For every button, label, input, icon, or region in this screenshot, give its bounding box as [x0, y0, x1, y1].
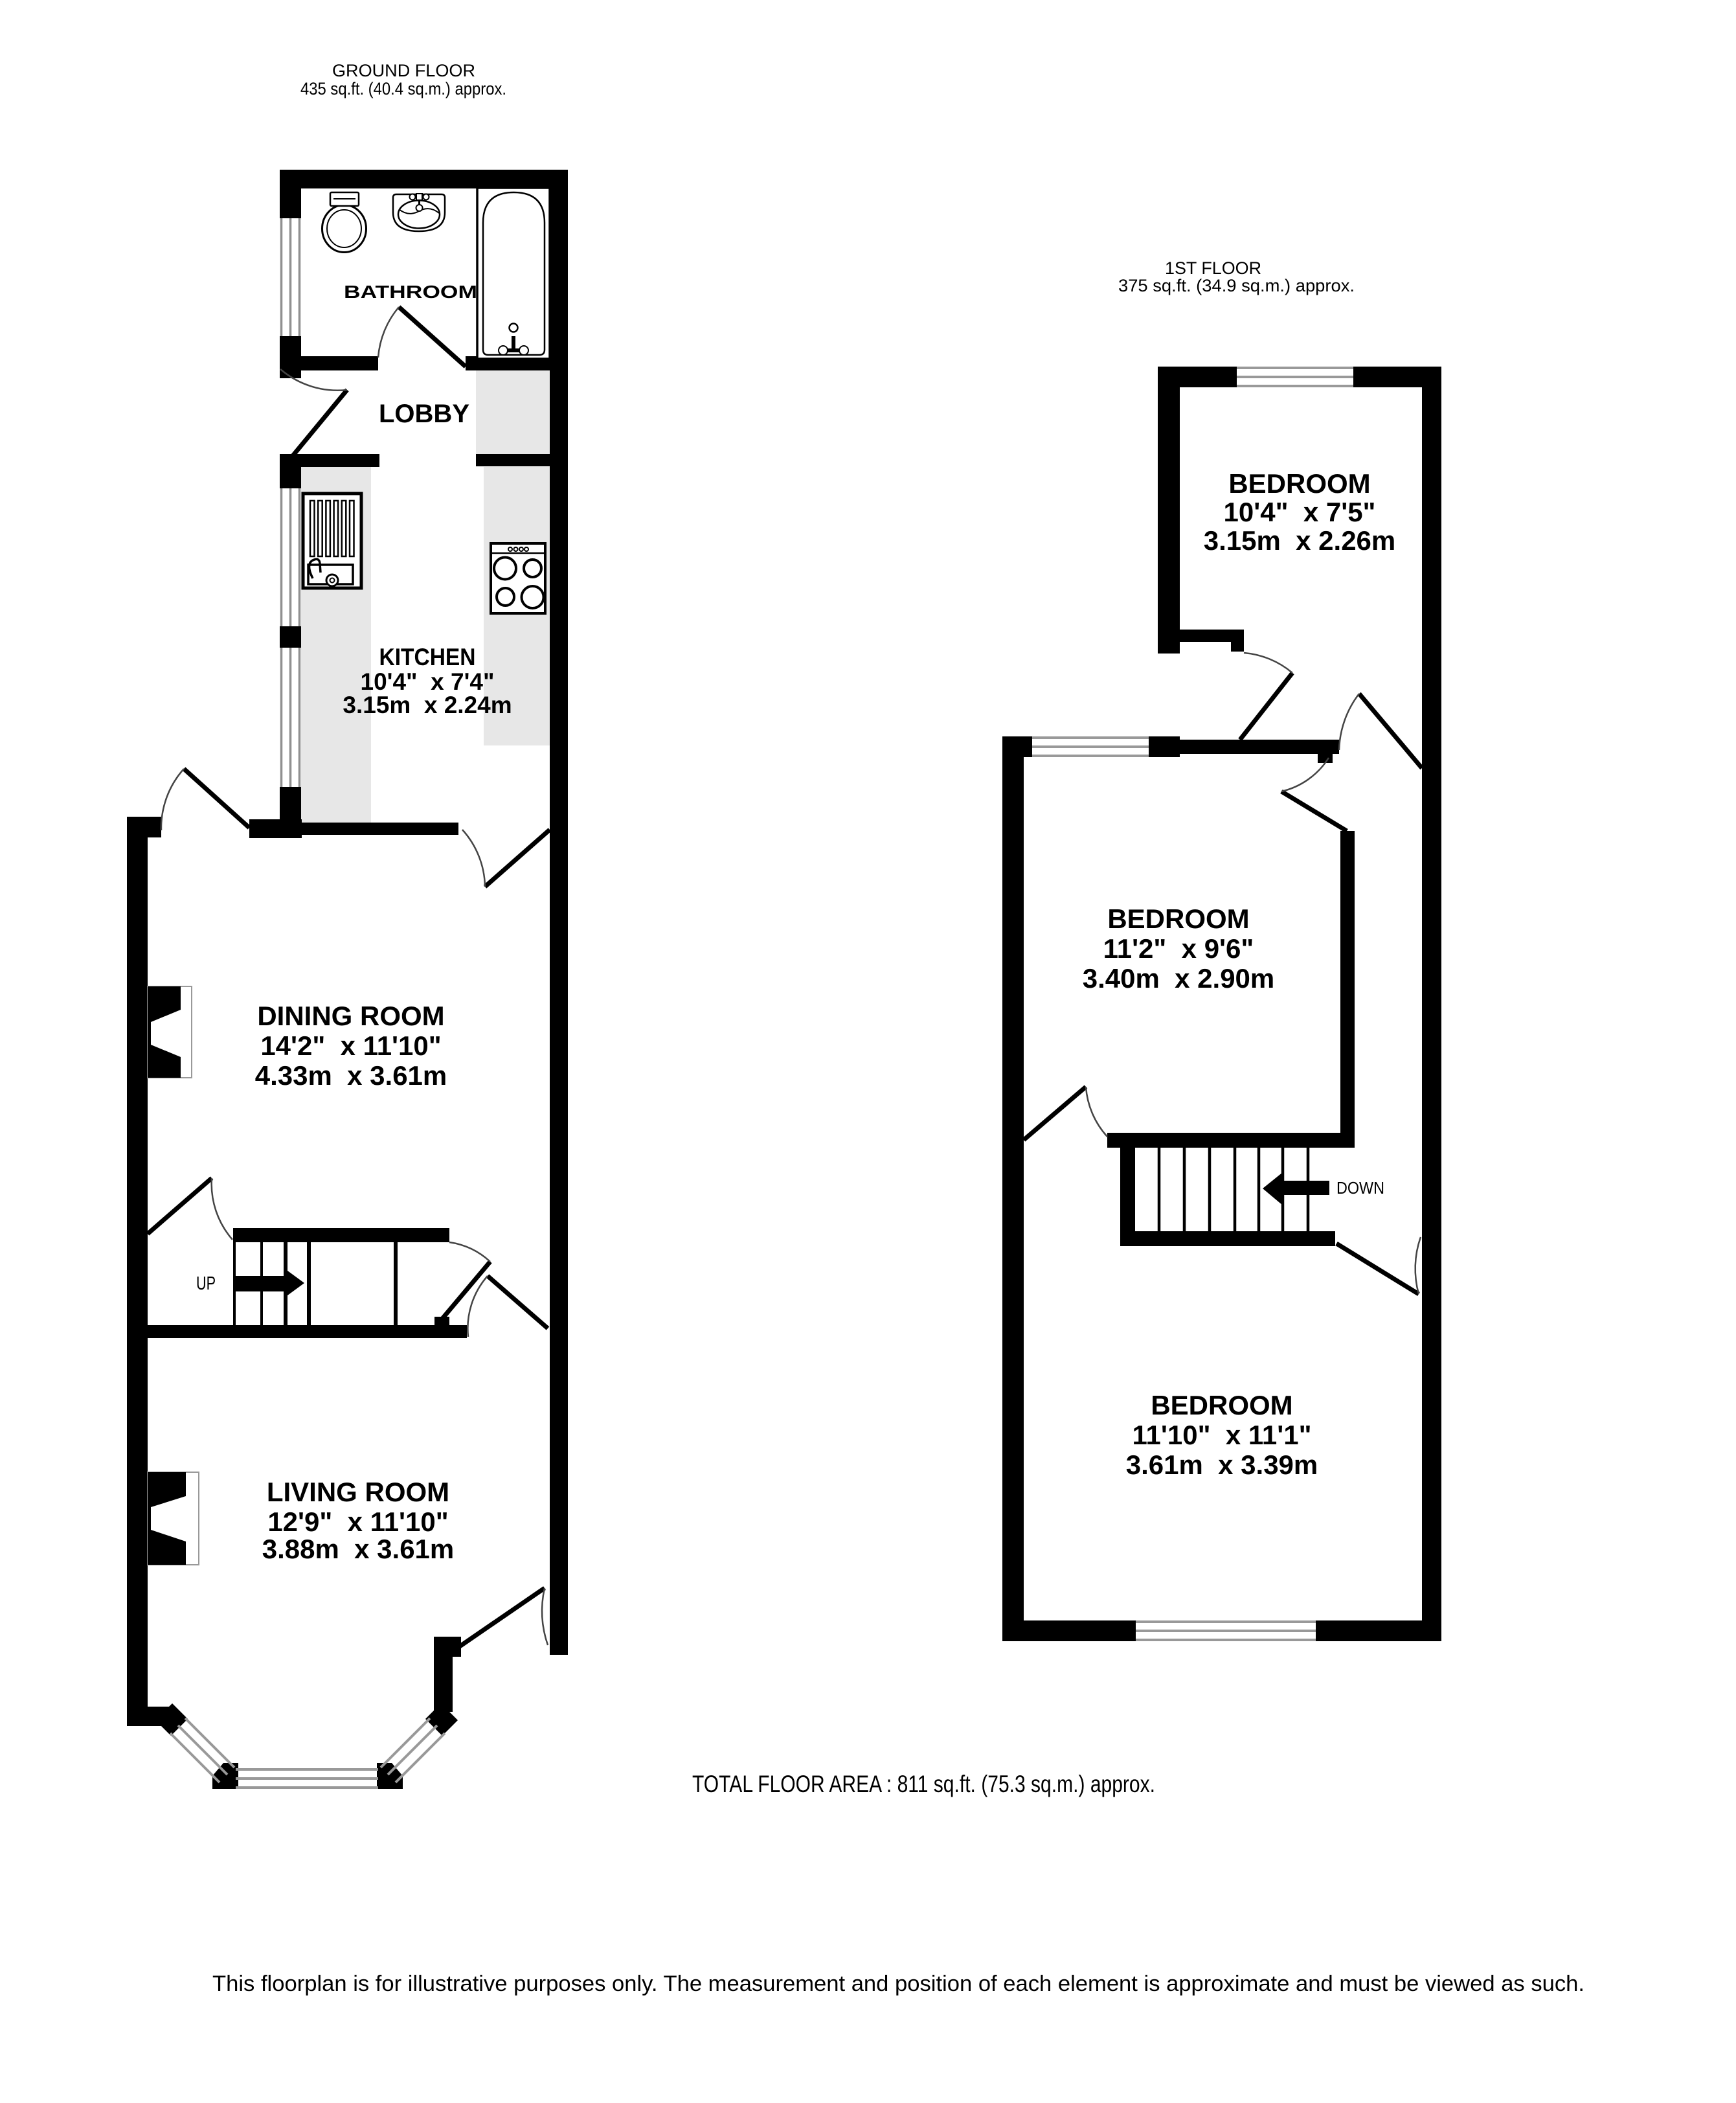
svg-text:LOBBY: LOBBY — [379, 400, 469, 428]
svg-text:12'9" x 11'10": 12'9" x 11'10" — [267, 1506, 448, 1537]
svg-text:TOTAL FLOOR AREA : 811 sq.ft.: TOTAL FLOOR AREA : 811 sq.ft. (75.3 sq.m… — [692, 1771, 1155, 1797]
svg-text:3.15m x 2.24m: 3.15m x 2.24m — [343, 692, 512, 718]
svg-text:3.15m x 2.26m: 3.15m x 2.26m — [1204, 525, 1396, 556]
svg-text:3.61m x 3.39m: 3.61m x 3.39m — [1126, 1449, 1318, 1480]
svg-text:11'2" x 9'6": 11'2" x 9'6" — [1103, 933, 1254, 964]
svg-text:KITCHEN: KITCHEN — [379, 644, 476, 670]
svg-text:1ST FLOOR: 1ST FLOOR — [1165, 258, 1261, 278]
svg-text:375 sq.ft. (34.9 sq.m.) approx: 375 sq.ft. (34.9 sq.m.) approx. — [1118, 276, 1355, 295]
svg-text:10'4" x 7'5": 10'4" x 7'5" — [1224, 497, 1376, 527]
svg-text:DOWN: DOWN — [1336, 1178, 1384, 1198]
svg-text:UP: UP — [196, 1273, 216, 1294]
svg-text:10'4" x 7'4": 10'4" x 7'4" — [361, 668, 495, 695]
svg-text:DINING ROOM: DINING ROOM — [257, 1001, 444, 1031]
svg-text:BEDROOM: BEDROOM — [1228, 468, 1370, 499]
svg-text:3.88m x 3.61m: 3.88m x 3.61m — [262, 1534, 455, 1564]
svg-text:LIVING ROOM: LIVING ROOM — [267, 1477, 449, 1507]
svg-text:This floorplan is for illustra: This floorplan is for illustrative purpo… — [212, 1972, 1584, 1996]
svg-text:4.33m x 3.61m: 4.33m x 3.61m — [255, 1060, 447, 1091]
svg-text:11'10" x 11'1": 11'10" x 11'1" — [1132, 1420, 1311, 1450]
svg-text:435 sq.ft. (40.4 sq.m.) approx: 435 sq.ft. (40.4 sq.m.) approx. — [300, 79, 506, 98]
svg-text:BATHROOM: BATHROOM — [344, 282, 477, 302]
svg-text:14'2" x 11'10": 14'2" x 11'10" — [260, 1030, 441, 1061]
svg-text:BEDROOM: BEDROOM — [1107, 904, 1249, 934]
svg-text:3.40m x 2.90m: 3.40m x 2.90m — [1083, 963, 1275, 994]
svg-text:BEDROOM: BEDROOM — [1151, 1390, 1292, 1420]
svg-text:GROUND FLOOR: GROUND FLOOR — [332, 61, 475, 80]
